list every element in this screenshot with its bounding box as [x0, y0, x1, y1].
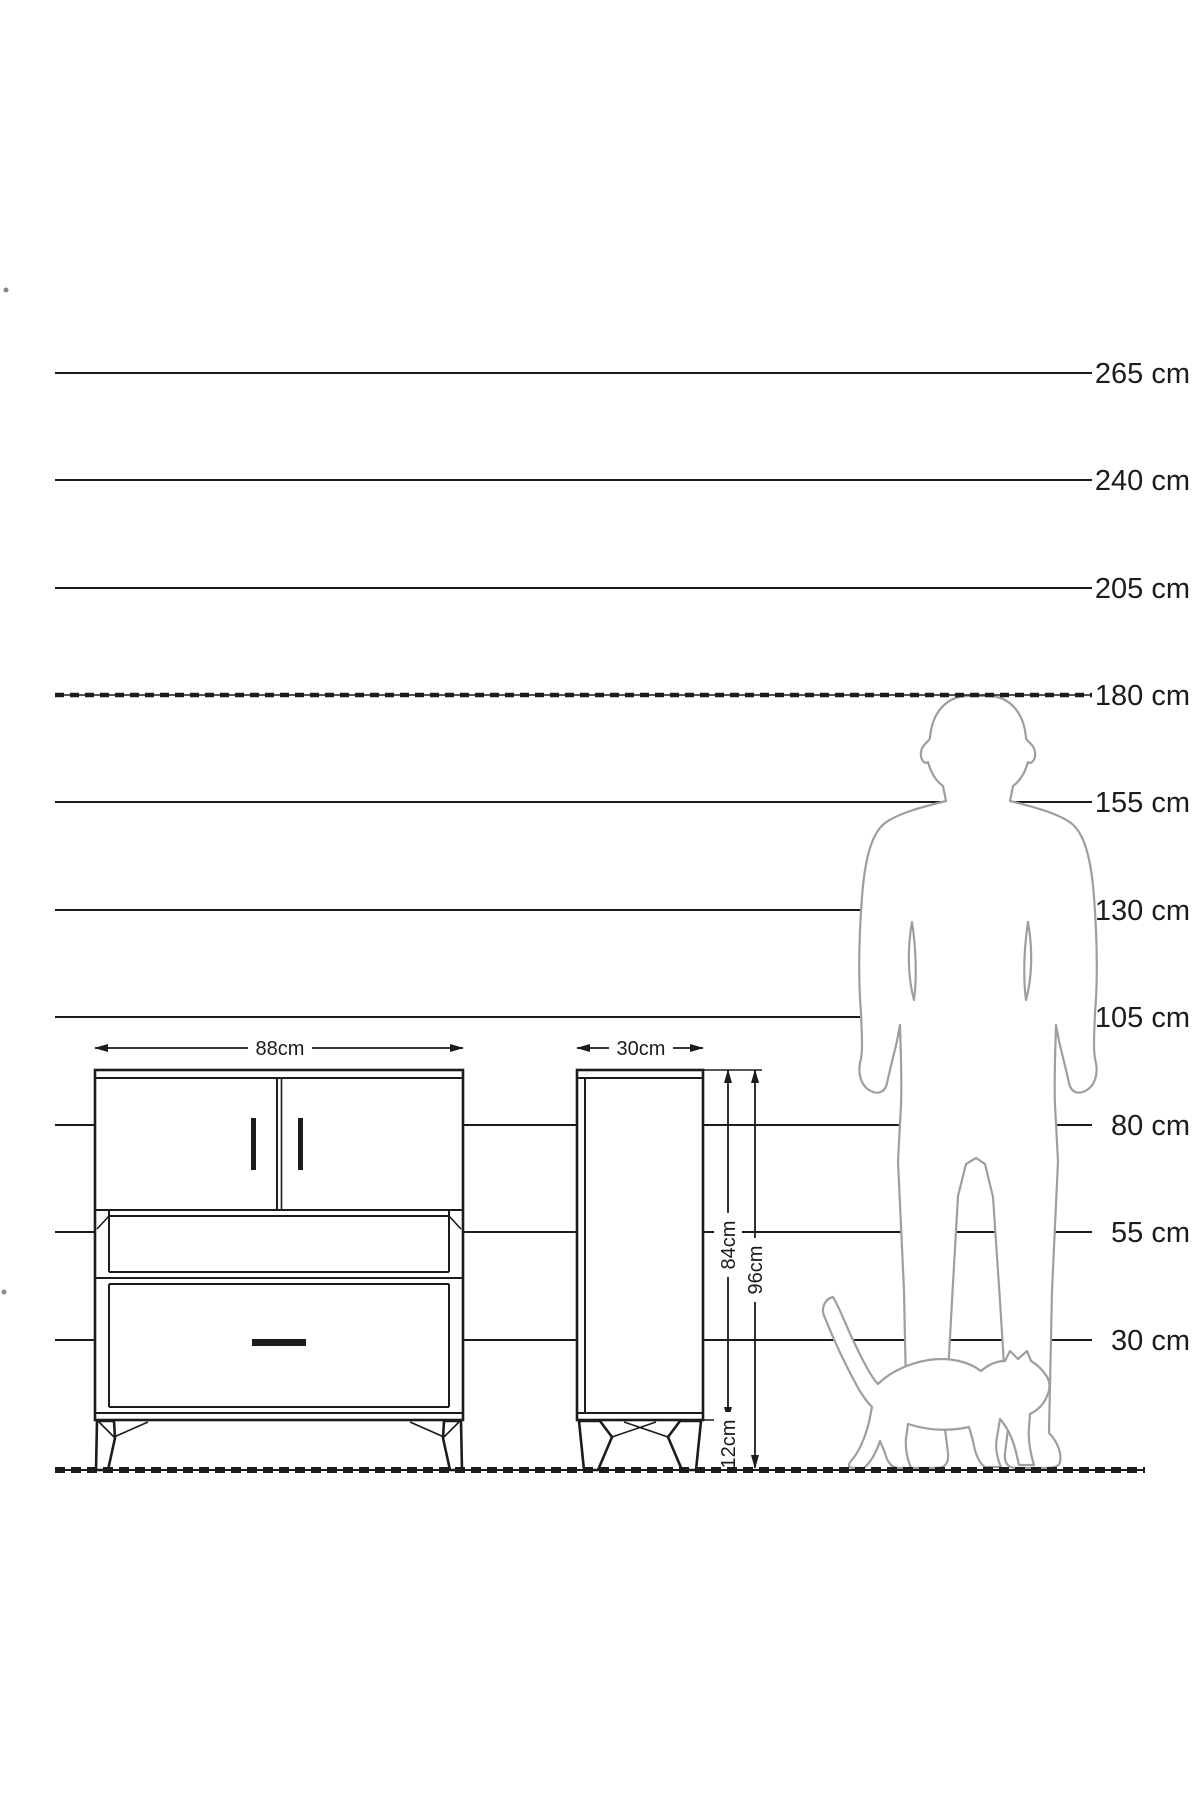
- depth-dimension: 30cm: [577, 1035, 703, 1061]
- leg-bracket: [612, 1422, 656, 1437]
- cabinet-front-view: [95, 1070, 463, 1470]
- drawer-handle: [252, 1339, 306, 1346]
- ruler-label-265-cm: 265 cm: [1095, 358, 1190, 390]
- leg-height-dimension: 12cm: [714, 1412, 742, 1476]
- cabinet-front-legs: [96, 1421, 462, 1470]
- ruler-label-80-cm: 80 cm: [1111, 1110, 1190, 1142]
- carcass-height-dimension: 84cm: [714, 1070, 742, 1420]
- cabinet-side-legs: [579, 1421, 701, 1470]
- ruler-label-130-cm: 130 cm: [1095, 895, 1190, 927]
- width-dimension-label: 88cm: [256, 1038, 305, 1060]
- stray-mark: [4, 288, 9, 293]
- width-dimension: 88cm: [95, 1035, 463, 1061]
- ruler-label-105-cm: 105 cm: [1095, 1002, 1190, 1034]
- depth-dimension-label: 30cm: [617, 1038, 666, 1060]
- height-ruler-labels: 265 cm240 cm205 cm180 cm155 cm130 cm105 …: [1095, 358, 1190, 1357]
- cabinet-leg: [579, 1421, 612, 1470]
- ruler-label-205-cm: 205 cm: [1095, 573, 1190, 605]
- ruler-label-240-cm: 240 cm: [1095, 465, 1190, 497]
- ruler-label-30-cm: 30 cm: [1111, 1325, 1190, 1357]
- cabinet-body: [95, 1070, 463, 1420]
- door-handle-left: [251, 1118, 256, 1170]
- ruler-label-180-cm: 180 cm: [1095, 680, 1190, 712]
- man-silhouette: [859, 696, 1097, 1468]
- stray-mark: [2, 1290, 7, 1295]
- side-body: [577, 1070, 703, 1420]
- door-handle-right: [298, 1118, 303, 1170]
- furniture-dimension-diagram: 265 cm240 cm205 cm180 cm155 cm130 cm105 …: [0, 0, 1200, 1800]
- leg-height-label: 12cm: [718, 1420, 740, 1469]
- cabinet-side-view: [577, 1070, 703, 1470]
- man-outline: [859, 696, 1097, 1468]
- ruler-label-155-cm: 155 cm: [1095, 787, 1190, 819]
- diagram-canvas: 265 cm240 cm205 cm180 cm155 cm130 cm105 …: [0, 0, 1200, 1800]
- cabinet-leg: [668, 1421, 701, 1470]
- carcass-height-label: 84cm: [718, 1221, 740, 1270]
- ruler-label-55-cm: 55 cm: [1111, 1217, 1190, 1249]
- leg-bracket: [624, 1422, 668, 1437]
- total-height-dimension: 96cm: [741, 1070, 769, 1468]
- total-height-label: 96cm: [745, 1246, 767, 1295]
